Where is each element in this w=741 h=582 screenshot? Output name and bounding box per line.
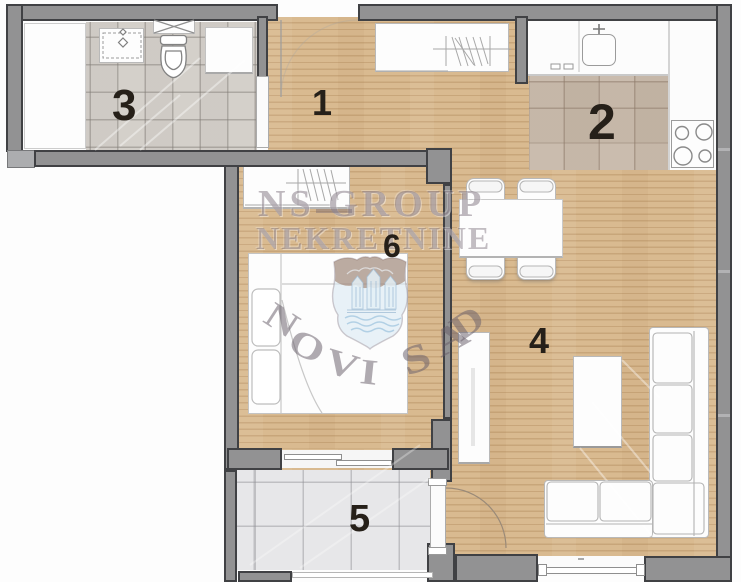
svg-text:V: V	[320, 340, 364, 388]
svg-text:I: I	[358, 351, 380, 393]
